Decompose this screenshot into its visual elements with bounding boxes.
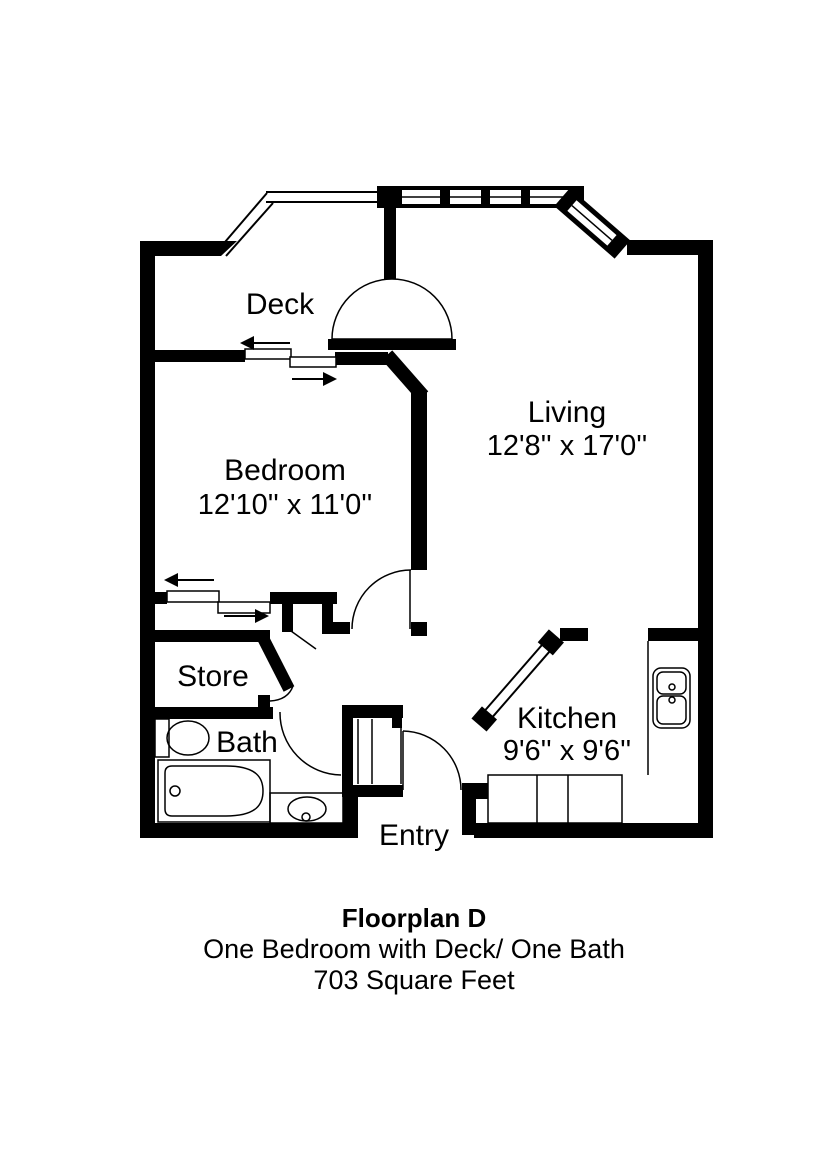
top-right-exterior-wall xyxy=(627,240,713,255)
caption: Floorplan D One Bedroom with Deck/ One B… xyxy=(203,903,625,995)
hall-corner-stub xyxy=(322,622,350,634)
bath-sink xyxy=(270,793,343,823)
deck-sliding-door xyxy=(245,349,336,367)
bedroom-closet-sliding-door xyxy=(167,591,270,613)
bottom-exterior-wall-right xyxy=(474,823,713,838)
floorplan-page: Deck Living 12'8'' x 17'0'' Bedroom 12'1… xyxy=(0,0,817,1155)
caption-subtitle: One Bedroom with Deck/ One Bath xyxy=(203,934,625,964)
sliding-panel xyxy=(245,349,291,359)
entry-closet-top-wall xyxy=(342,705,403,718)
corner-window-diagonal xyxy=(554,188,630,259)
tub-surround xyxy=(158,760,270,822)
bedroom-label: Bedroom xyxy=(224,454,346,487)
living-dimensions: 12'8'' x 17'0'' xyxy=(487,430,648,462)
railing-line-diagonal xyxy=(226,203,273,256)
sink-drain xyxy=(669,697,675,703)
sliding-panel xyxy=(167,591,219,602)
living-label: Living xyxy=(528,396,606,429)
entry-step-right-leg xyxy=(462,783,476,835)
deck-railing xyxy=(219,192,377,256)
living-diagonal-wall xyxy=(387,355,423,396)
bottom-exterior-wall-left xyxy=(140,823,358,838)
kitchen-cabinets xyxy=(488,775,622,823)
deck-step-base-wall xyxy=(328,339,456,350)
bedroom-door xyxy=(352,570,411,629)
niche-door-leaf xyxy=(291,631,316,649)
door-swing-arc xyxy=(403,731,461,790)
entry-step-left-wall xyxy=(343,790,358,838)
kitchen-wall-right xyxy=(648,628,698,641)
kitchen-label: Kitchen xyxy=(517,702,617,735)
bathtub xyxy=(158,760,270,822)
entry-closet-shelves xyxy=(358,719,401,784)
cabinet-run xyxy=(488,775,622,823)
bath-top-wall xyxy=(140,707,273,719)
door-swing-arc xyxy=(352,570,411,629)
arrow-head xyxy=(164,573,178,587)
store-door-leaf xyxy=(263,638,289,689)
sliding-panel xyxy=(290,357,336,367)
deck-living-wall xyxy=(384,206,396,286)
arrow-head xyxy=(240,336,254,350)
top-left-exterior-wall xyxy=(140,241,237,256)
bedroom-door-stub xyxy=(411,622,427,636)
deck-label: Deck xyxy=(246,288,315,321)
closet-slider-arrow-left xyxy=(164,573,214,587)
left-exterior-wall xyxy=(140,241,155,838)
toilet-bowl xyxy=(167,721,209,755)
window-band xyxy=(377,186,584,208)
sink-basin xyxy=(288,797,326,821)
bedroom-bottom-wall xyxy=(270,592,337,604)
store-top-wall xyxy=(140,630,270,642)
kitchen-sink xyxy=(653,668,690,728)
tub-drain xyxy=(170,786,180,796)
right-exterior-wall xyxy=(698,240,713,838)
store-door-stub xyxy=(258,695,270,707)
bedroom-deck-wall-right xyxy=(335,352,388,365)
niche-left-wall xyxy=(282,604,293,632)
kitchen-dimensions: 9'6'' x 9'6'' xyxy=(503,735,631,767)
sink-drain xyxy=(669,684,675,690)
kitchen-wall-left xyxy=(560,628,588,641)
bedroom-dimensions: 12'10'' x 11'0'' xyxy=(198,489,373,521)
sliding-panel xyxy=(218,602,270,613)
bath-label: Bath xyxy=(216,726,278,759)
railing-line-diagonal xyxy=(219,193,267,249)
deck-slider-arrow-left xyxy=(240,336,290,350)
arrow-head xyxy=(323,372,337,386)
caption-area: 703 Square Feet xyxy=(313,965,515,995)
entry-closet-left-wall xyxy=(342,718,353,786)
deck-slider-arrow-right xyxy=(292,372,337,386)
bath-door-swing-arc xyxy=(280,712,341,775)
entry-label: Entry xyxy=(379,819,449,852)
sink-drain xyxy=(302,813,310,821)
floorplan-drawing: Deck Living 12'8'' x 17'0'' Bedroom 12'1… xyxy=(0,0,817,1155)
toilet xyxy=(155,719,209,757)
caption-title: Floorplan D xyxy=(342,903,486,933)
bedroom-deck-wall-left xyxy=(140,350,245,362)
store-label: Store xyxy=(177,660,249,693)
bedroom-living-wall xyxy=(411,392,427,570)
sink-bowl xyxy=(657,696,686,724)
bedroom-bottom-wall-stub xyxy=(140,592,167,604)
entry-door xyxy=(403,731,461,790)
deck-curved-step xyxy=(332,279,452,339)
